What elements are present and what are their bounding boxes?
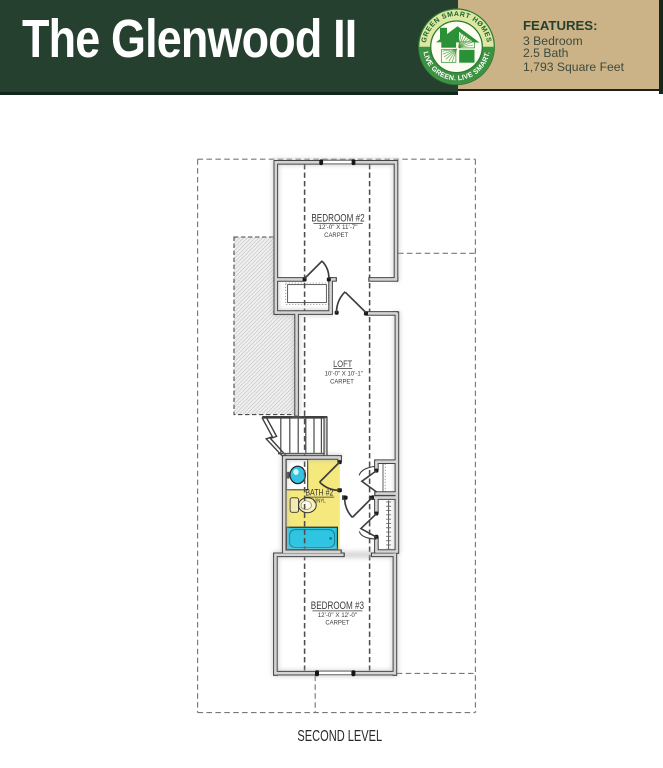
svg-text:VINYL: VINYL — [313, 498, 326, 505]
svg-text:12'-0" X 11'-7": 12'-0" X 11'-7" — [319, 224, 359, 231]
svg-text:CARPET: CARPET — [324, 232, 348, 239]
svg-text:CARPET: CARPET — [325, 619, 349, 626]
svg-text:12'-0" X 12'-0": 12'-0" X 12'-0" — [318, 612, 358, 619]
svg-text:CARPET: CARPET — [330, 378, 354, 385]
svg-text:LOFT: LOFT — [333, 358, 353, 369]
svg-text:10'-0" X 10'-1": 10'-0" X 10'-1" — [325, 370, 363, 377]
svg-text:SECOND LEVEL: SECOND LEVEL — [297, 727, 382, 744]
svg-text:BATH #2: BATH #2 — [305, 488, 333, 498]
